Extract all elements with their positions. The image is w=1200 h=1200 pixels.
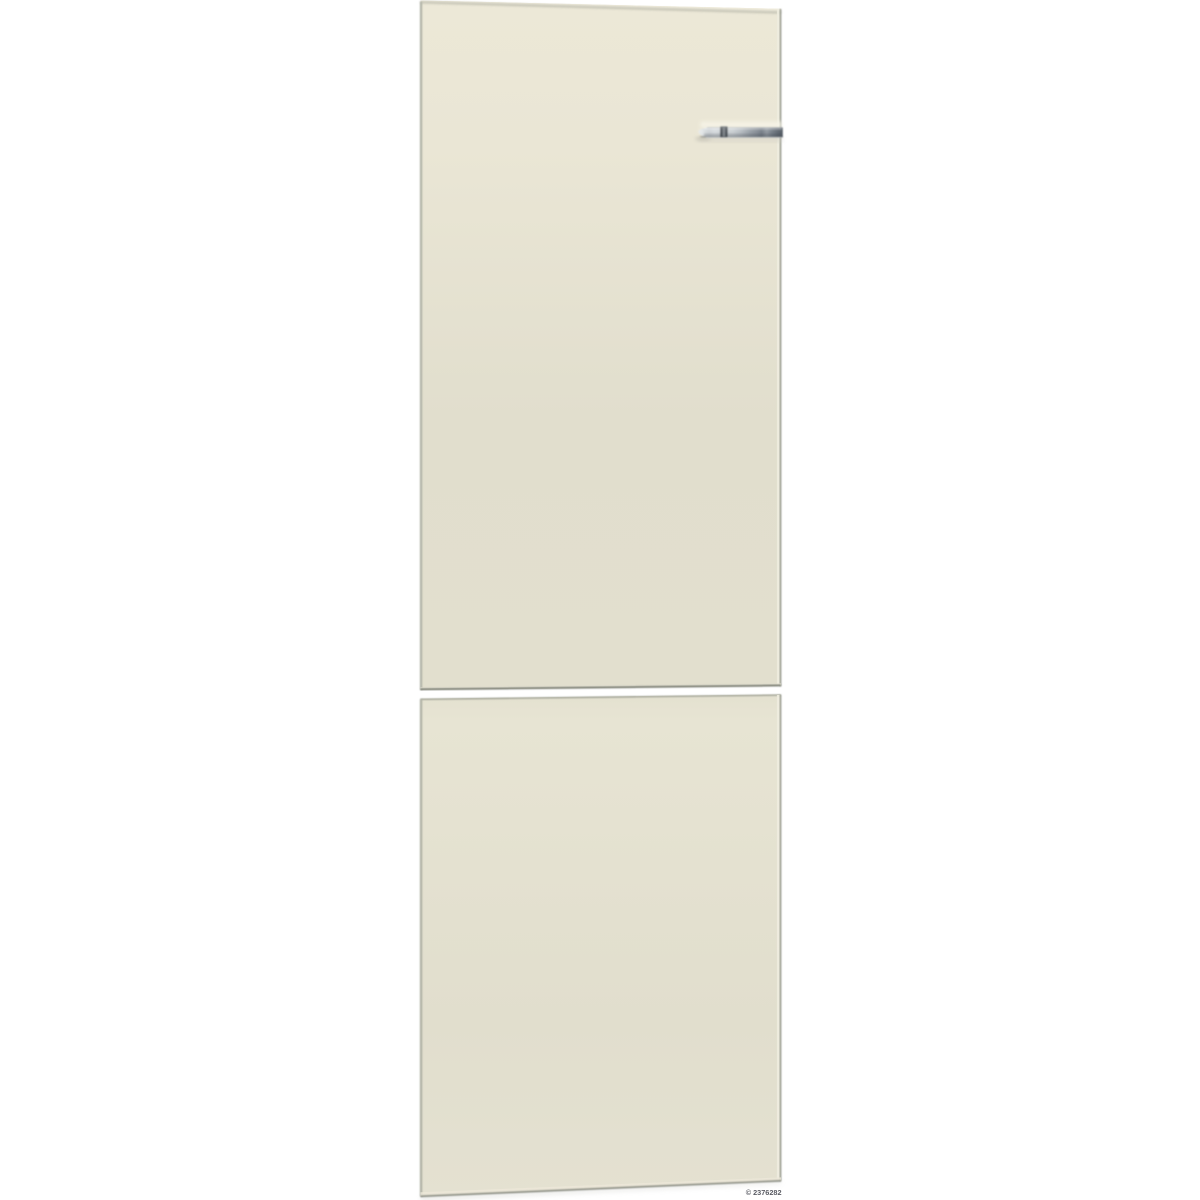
svg-text:© 2376282: © 2376282 <box>746 1188 782 1197</box>
